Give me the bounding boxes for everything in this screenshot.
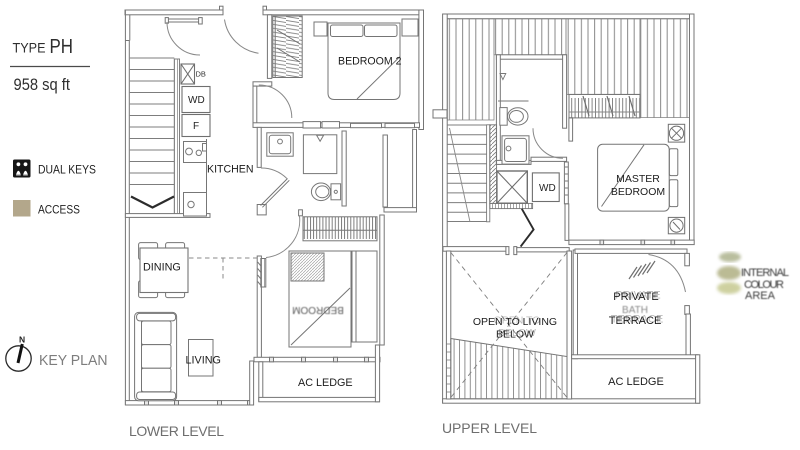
svg-text:BATH: BATH <box>622 305 648 316</box>
svg-text:ACCESS: ACCESS <box>38 203 80 217</box>
svg-text:AC LEDGE: AC LEDGE <box>608 376 664 388</box>
svg-text:LIVING: LIVING <box>186 355 221 367</box>
svg-text:LOWER LEVEL: LOWER LEVEL <box>129 423 224 439</box>
svg-text:BELOW: BELOW <box>496 329 534 341</box>
svg-text:KITCHEN: KITCHEN <box>207 164 254 176</box>
svg-text:DUAL KEYS: DUAL KEYS <box>38 163 96 177</box>
svg-text:WD: WD <box>188 95 205 106</box>
svg-text:TERRACE: TERRACE <box>609 315 662 327</box>
svg-text:DINING: DINING <box>143 262 181 274</box>
svg-text:F: F <box>193 121 199 132</box>
svg-text:KEY PLAN: KEY PLAN <box>39 353 108 369</box>
svg-text:958 sq ft: 958 sq ft <box>14 75 71 94</box>
svg-text:MASTER: MASTER <box>616 173 660 185</box>
svg-text:UPPER LEVEL: UPPER LEVEL <box>442 420 537 436</box>
svg-text:INTERNAL: INTERNAL <box>741 267 789 279</box>
svg-text:AC LEDGE: AC LEDGE <box>298 377 353 389</box>
svg-text:DB: DB <box>196 70 206 79</box>
svg-text:N: N <box>19 335 25 345</box>
svg-text:BEDROOM: BEDROOM <box>611 186 665 198</box>
svg-text:PH: PH <box>50 35 74 58</box>
svg-text:AREA: AREA <box>745 290 776 302</box>
svg-text:TYPE: TYPE <box>13 41 46 56</box>
svg-text:PRIVATE: PRIVATE <box>613 291 658 303</box>
svg-text:BEDROOM 2: BEDROOM 2 <box>338 56 402 68</box>
svg-text:WD: WD <box>539 183 556 194</box>
svg-text:BEDROOM: BEDROOM <box>292 304 344 315</box>
